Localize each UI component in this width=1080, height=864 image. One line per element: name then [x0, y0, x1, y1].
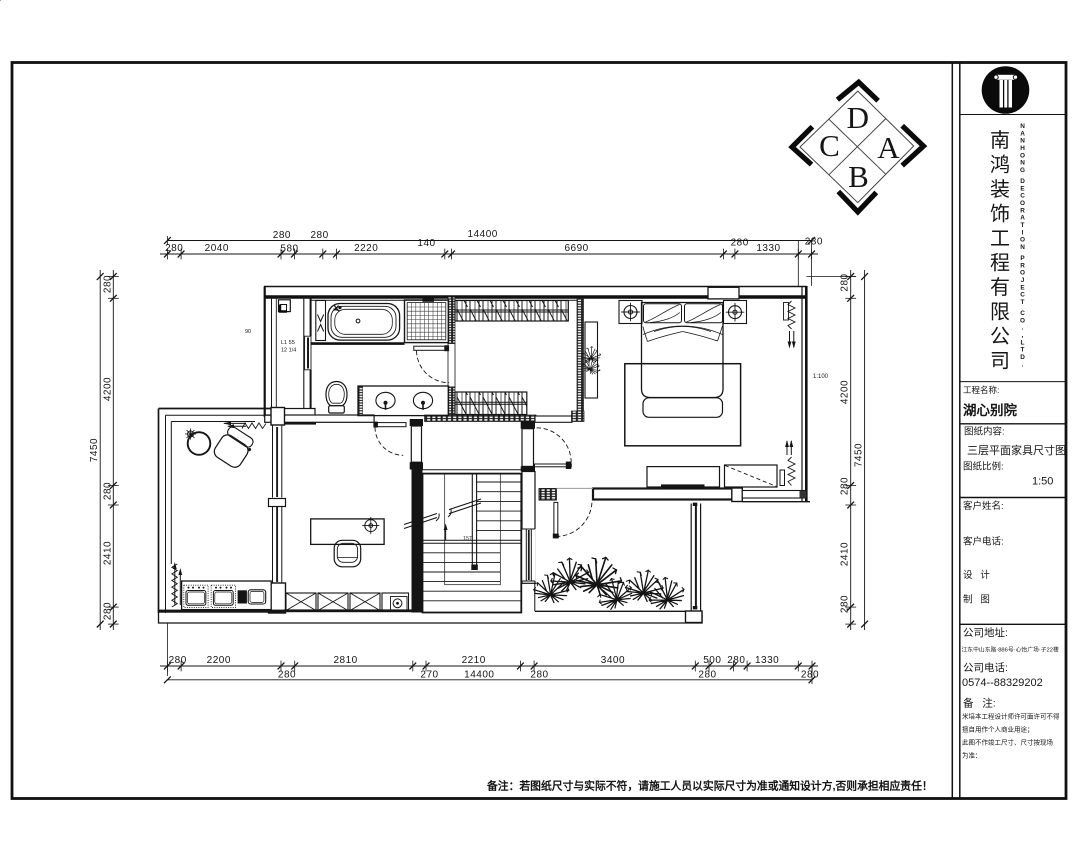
svg-text:2410: 2410 — [840, 542, 851, 566]
svg-text:4200: 4200 — [840, 380, 851, 404]
svg-text:280: 280 — [840, 595, 851, 613]
svg-text:南: 南 — [990, 129, 1010, 152]
svg-text:1:50: 1:50 — [1032, 476, 1053, 488]
svg-text:580: 580 — [280, 244, 298, 255]
svg-text:有: 有 — [990, 276, 1010, 299]
svg-text:280: 280 — [840, 273, 851, 291]
svg-text:E: E — [1020, 284, 1025, 291]
svg-text:A: A — [1020, 130, 1025, 137]
svg-text:E: E — [1020, 185, 1025, 192]
svg-text:工: 工 — [990, 228, 1010, 250]
svg-text:设 计: 设 计 — [963, 569, 990, 581]
svg-text:饰: 饰 — [990, 203, 1010, 226]
svg-text:.: . — [1022, 325, 1024, 332]
svg-text:H: H — [1020, 145, 1025, 152]
svg-text:I: I — [1022, 229, 1024, 236]
svg-text:N: N — [1020, 244, 1025, 251]
svg-text:N: N — [1020, 138, 1025, 145]
svg-text:为准：: 为准： — [962, 751, 982, 760]
svg-text:图纸比例:: 图纸比例: — [963, 461, 1004, 473]
svg-text:14400: 14400 — [468, 229, 498, 240]
svg-text:0574--88329202: 0574--88329202 — [962, 677, 1043, 689]
svg-text:装: 装 — [990, 178, 1010, 201]
svg-text:15T: 15T — [463, 536, 473, 542]
svg-text:280: 280 — [727, 655, 745, 666]
svg-text:280: 280 — [169, 655, 187, 666]
svg-text:7450: 7450 — [89, 438, 100, 462]
svg-text:限: 限 — [990, 301, 1010, 324]
svg-text:1:100: 1:100 — [813, 374, 829, 380]
svg-text:客户电话:: 客户电话: — [963, 536, 1004, 548]
svg-text:O: O — [1020, 237, 1025, 244]
svg-text:公: 公 — [990, 326, 1010, 348]
svg-text:米培本工程设计师许可面许可不得: 米培本工程设计师许可面许可不得 — [962, 712, 1060, 721]
svg-text:此图不作竣工尺寸、尺寸按现场: 此图不作竣工尺寸、尺寸按现场 — [962, 738, 1054, 747]
svg-text:280: 280 — [698, 669, 716, 680]
svg-text:C: C — [819, 128, 840, 163]
svg-text:2210: 2210 — [462, 655, 486, 666]
svg-text:D: D — [847, 100, 869, 135]
svg-text:司: 司 — [990, 351, 1010, 373]
svg-text:P: P — [1020, 255, 1025, 262]
svg-text:G: G — [1020, 167, 1025, 174]
svg-text:A: A — [1020, 215, 1025, 222]
svg-text:R: R — [1020, 262, 1025, 269]
svg-text:J: J — [1021, 277, 1025, 284]
svg-text:280: 280 — [273, 230, 291, 241]
svg-text:公司地址:: 公司地址: — [963, 626, 1008, 639]
svg-text:三层平面家具尺寸图: 三层平面家具尺寸图 — [967, 443, 1066, 457]
svg-text:2040: 2040 — [205, 243, 229, 254]
svg-text:N: N — [1020, 160, 1025, 167]
svg-text:280: 280 — [102, 482, 113, 500]
svg-text:擅自用作个人商业用途；: 擅自用作个人商业用途； — [962, 725, 1034, 734]
svg-text:O: O — [1020, 200, 1025, 207]
svg-text:D: D — [1020, 178, 1025, 185]
svg-text:500: 500 — [703, 655, 721, 666]
svg-text:T: T — [1021, 299, 1025, 306]
svg-text:N: N — [1020, 123, 1025, 130]
svg-text:C: C — [1020, 193, 1025, 200]
svg-text:90: 90 — [245, 329, 251, 335]
svg-text:C: C — [1020, 310, 1025, 317]
svg-text:280: 280 — [165, 243, 183, 254]
svg-text:制 图: 制 图 — [963, 594, 990, 606]
svg-text:2200: 2200 — [207, 655, 231, 666]
svg-text:O: O — [1020, 152, 1025, 159]
svg-text:4200: 4200 — [102, 377, 113, 401]
svg-text:备注：若图纸尺寸与实际不符，请施工人员以实际尺寸为准或通知设: 备注：若图纸尺寸与实际不符，请施工人员以实际尺寸为准或通知设计方,否则承担相应责… — [486, 779, 933, 793]
svg-text:L1 55: L1 55 — [281, 340, 295, 346]
svg-text:280: 280 — [731, 238, 749, 249]
svg-text:程: 程 — [990, 252, 1010, 275]
svg-text:客户姓名:: 客户姓名: — [963, 500, 1004, 512]
svg-text:1330: 1330 — [755, 655, 779, 666]
svg-text:公司电话:: 公司电话: — [963, 661, 1008, 674]
svg-text:3400: 3400 — [601, 655, 625, 666]
svg-text:B: B — [848, 159, 869, 194]
svg-text:280: 280 — [102, 602, 113, 620]
svg-text:280: 280 — [840, 477, 851, 495]
svg-text:2810: 2810 — [333, 655, 357, 666]
svg-text:280: 280 — [278, 669, 296, 680]
svg-text:.: . — [1022, 361, 1024, 368]
svg-text:O: O — [1020, 270, 1025, 277]
svg-text:江东中山东路·886号·心怡广场·子22楼: 江东中山东路·886号·心怡广场·子22楼 — [962, 646, 1059, 654]
svg-text:280: 280 — [311, 230, 329, 241]
svg-text:R: R — [1020, 207, 1025, 214]
svg-text:L: L — [1021, 339, 1025, 346]
svg-text:C: C — [1020, 292, 1025, 299]
svg-text:280: 280 — [530, 669, 548, 680]
svg-text:140: 140 — [417, 238, 435, 249]
svg-text:工程名称:: 工程名称: — [963, 385, 999, 395]
svg-text:7450: 7450 — [854, 443, 865, 467]
svg-text:,: , — [1022, 332, 1024, 339]
svg-text:图纸内容:: 图纸内容: — [964, 426, 1005, 438]
svg-text:D: D — [1020, 354, 1025, 361]
svg-text:T: T — [1021, 222, 1025, 229]
svg-text:280: 280 — [102, 275, 113, 293]
svg-text:2220: 2220 — [354, 243, 378, 254]
svg-text:14400: 14400 — [464, 669, 494, 680]
svg-text:280: 280 — [805, 237, 823, 248]
svg-text:1330: 1330 — [756, 243, 780, 254]
svg-text:2410: 2410 — [102, 541, 113, 565]
svg-text:270: 270 — [420, 669, 438, 680]
svg-text:A: A — [877, 130, 900, 165]
svg-text:备 注:: 备 注: — [963, 697, 996, 710]
svg-text:280: 280 — [801, 669, 819, 680]
svg-text:6690: 6690 — [564, 243, 588, 254]
svg-text:湖心别院: 湖心别院 — [963, 402, 1017, 418]
svg-text:12 1/4: 12 1/4 — [281, 348, 296, 354]
svg-text:O: O — [1020, 317, 1025, 324]
svg-text:鸿: 鸿 — [990, 154, 1010, 177]
svg-text:T: T — [1021, 347, 1025, 354]
